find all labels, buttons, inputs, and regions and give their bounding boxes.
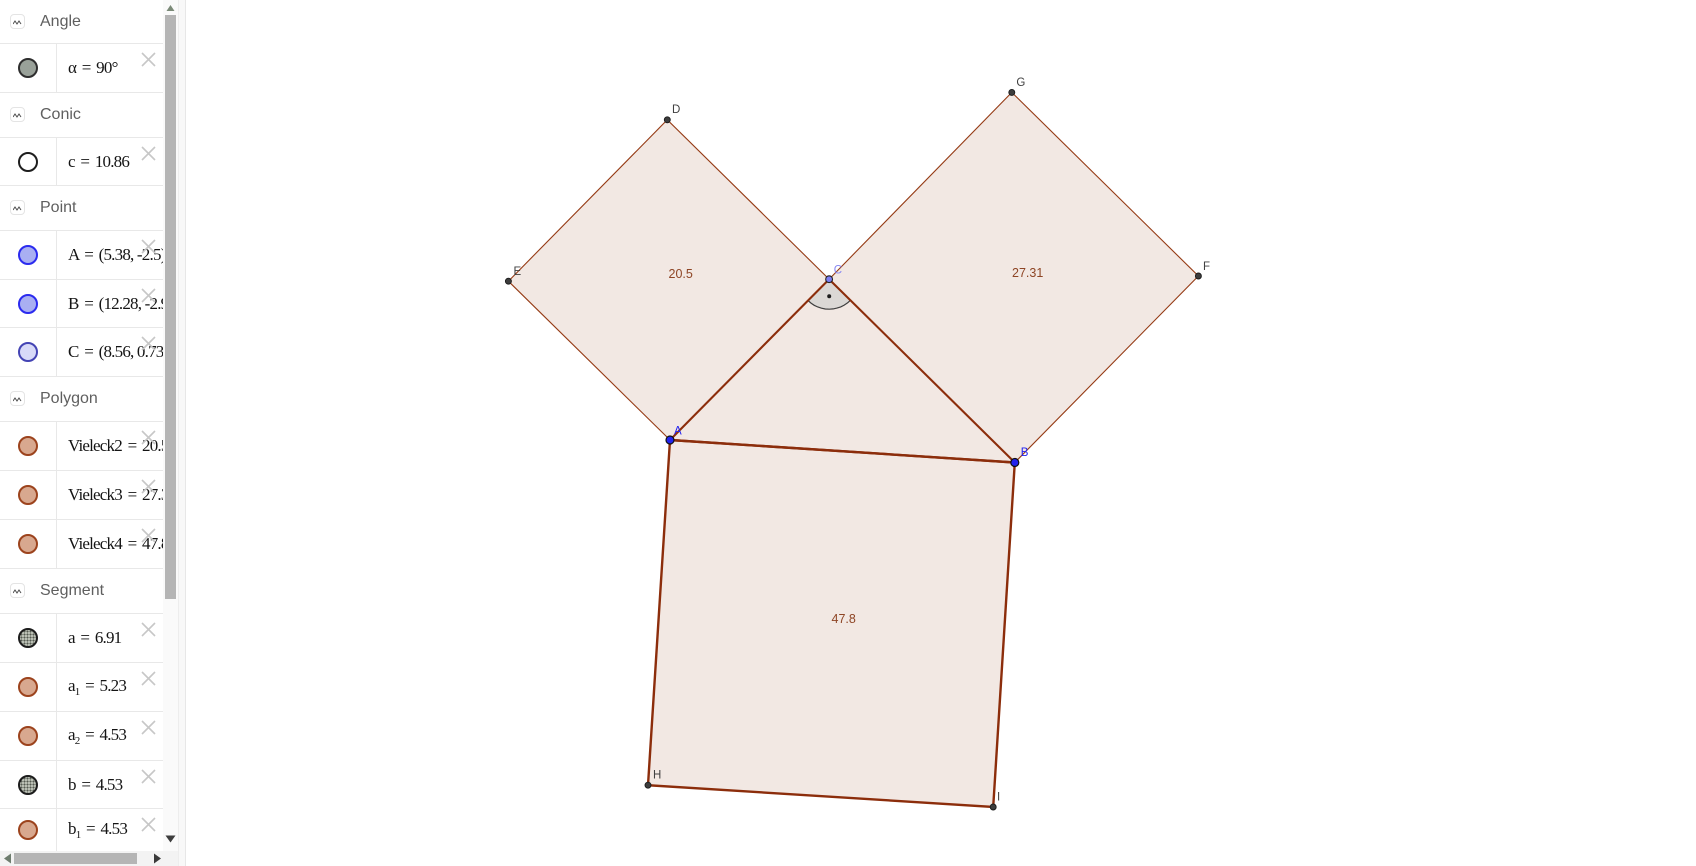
svg-text:H: H — [653, 770, 661, 782]
svg-text:A: A — [674, 425, 682, 437]
svg-text:G: G — [1016, 77, 1025, 89]
svg-text:20.5: 20.5 — [669, 267, 693, 281]
svg-text:D: D — [672, 104, 680, 116]
svg-text:B: B — [1021, 447, 1029, 459]
svg-text:E: E — [514, 266, 522, 278]
svg-text:27.31: 27.31 — [1012, 266, 1043, 280]
svg-text:F: F — [1203, 261, 1210, 273]
svg-text:I: I — [997, 791, 1000, 803]
svg-text:C: C — [834, 265, 842, 277]
svg-text:47.8: 47.8 — [832, 612, 856, 626]
